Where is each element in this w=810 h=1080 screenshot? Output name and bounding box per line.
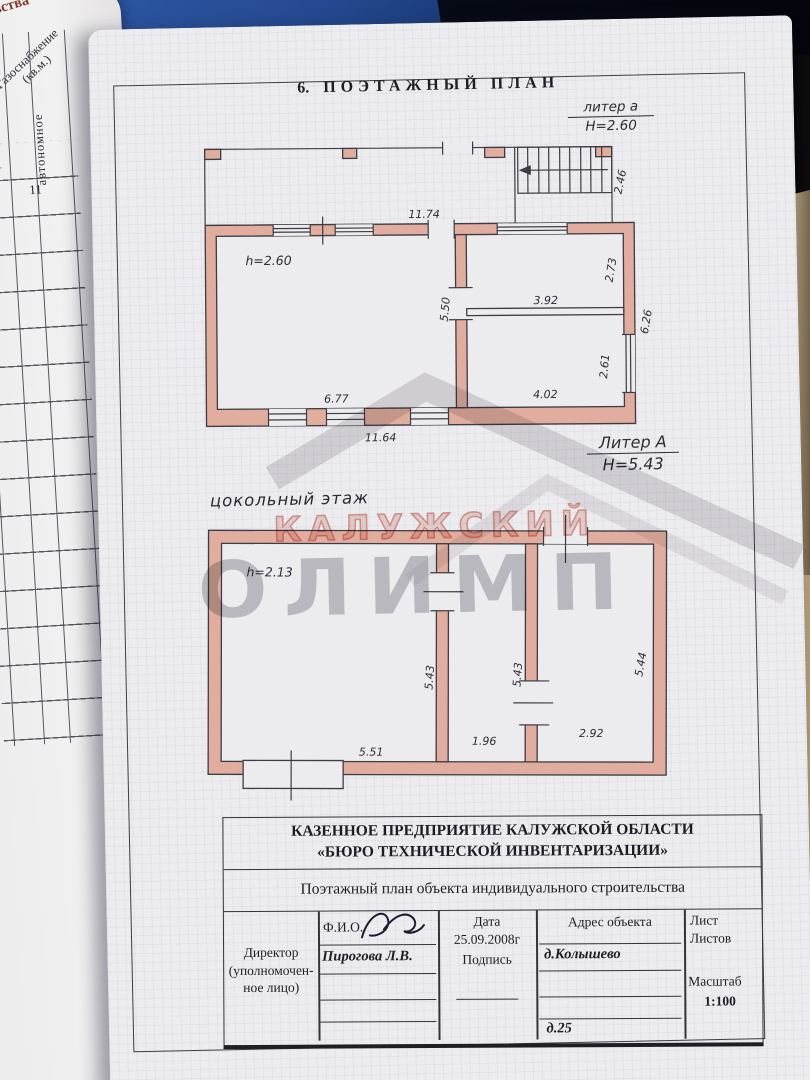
section-number: 6. <box>297 79 309 96</box>
position-cell: Директор (уполномочен- ное лицо) <box>224 912 319 1041</box>
window-symbol <box>497 223 567 234</box>
title-block-table: КАЗЕННОЕ ПРЕДПРИЯТИЕ КАЛУЖСКОЙ ОБЛАСТИ «… <box>222 814 763 1049</box>
dim-room1-depth: 5.43 <box>422 665 437 690</box>
window-symbol <box>268 409 306 426</box>
address-cell: Адрес объекта д.Колышево д.25 <box>536 910 685 1040</box>
fio-cell: Ф.И.О. Пирогова Л.В. <box>318 911 439 1041</box>
building-height: Н=5.43 <box>587 453 679 475</box>
ceiling-height-label: h=2.60 <box>245 253 291 268</box>
dim-side-total: 6.26 <box>638 309 655 335</box>
date-cell: Дата 25.09.2008г Подпись <box>438 910 537 1040</box>
building-label: Литер А Н=5.43 <box>587 432 680 475</box>
stair-direction-arrow <box>528 170 608 171</box>
signature <box>356 905 428 945</box>
annex-name: литер а <box>568 98 654 118</box>
date-value: 25.09.2008г <box>438 931 536 948</box>
stamp-grid: Директор (уполномочен- ное лицо) Ф.И.О. … <box>224 909 763 1041</box>
organization-name: КАЗЕННОЕ ПРЕДПРИЯТИЕ КАЛУЖСКОЙ ОБЛАСТИ «… <box>223 815 761 870</box>
dim-bottom-width: 11.64 <box>365 431 397 444</box>
sheet-scale-cell: Лист Листов Масштаб 1:100 <box>684 909 763 1038</box>
address-label: Адрес объекта <box>536 914 684 931</box>
floor-plan-sheet: 6.ПОЭТАЖНЫЙ ПЛАН литер а Н=2.60 <box>88 15 810 1080</box>
address-house: д.25 <box>546 1020 571 1037</box>
interior-wall <box>525 544 537 762</box>
dim-stair-depth: 2.46 <box>612 168 630 195</box>
sheets-label: Листов <box>690 930 731 946</box>
dim-window: 2.61 <box>597 353 612 379</box>
window-symbol <box>410 408 448 425</box>
first-floor-plan-drawing: 2.46 <box>197 139 669 454</box>
photo-of-floor-plan-document: ного строительства Газоснабжение (кв.м.)… <box>0 0 810 1080</box>
window-symbol <box>622 334 635 392</box>
dim-room1-width: 5.51 <box>359 746 384 759</box>
ceiling-height-label: h=2.13 <box>246 564 292 579</box>
fio-value: Пирогова Л.В. <box>322 948 413 965</box>
scale-label: Масштаб <box>688 973 741 989</box>
veranda-door-opening <box>443 142 473 155</box>
dim-room-depth: 5.50 <box>438 297 453 323</box>
basement-caption: цокольный этаж <box>210 488 369 510</box>
section-title: ПОЭТАЖНЫЙ ПЛАН <box>323 74 559 96</box>
window-symbol <box>326 408 364 425</box>
dim-top-width: 11.74 <box>408 208 440 221</box>
annex-height: Н=2.60 <box>568 116 654 135</box>
document-title: Поэтажный план объекта индивидуального с… <box>224 867 762 912</box>
partition-wall <box>467 308 624 316</box>
address-value: д.Колышево <box>544 946 621 963</box>
dim-room1-width: 6.77 <box>324 392 349 405</box>
dim-room2-width: 1.96 <box>472 735 497 748</box>
dim-room2-width: 4.02 <box>533 388 558 401</box>
interior-wall <box>455 235 467 408</box>
dim-partition: 3.92 <box>533 294 558 307</box>
staircase <box>515 147 613 224</box>
dim-room3-width: 2.92 <box>579 727 604 740</box>
annex-label: литер а Н=2.60 <box>568 98 655 135</box>
entrance-door-opening <box>428 220 454 239</box>
basement-plan-drawing: h=2.13 5.43 5.43 5.44 5.51 1.96 2.92 <box>201 512 682 813</box>
window-symbol <box>273 225 310 236</box>
sign-label: Подпись <box>438 951 536 968</box>
building-name: Литер А <box>587 432 679 455</box>
date-label: Дата <box>438 913 536 930</box>
sheet-label: Лист <box>690 913 718 929</box>
scale-value: 1:100 <box>704 993 736 1009</box>
dim-room2-depth: 5.43 <box>510 662 525 687</box>
window-symbol <box>335 224 373 235</box>
